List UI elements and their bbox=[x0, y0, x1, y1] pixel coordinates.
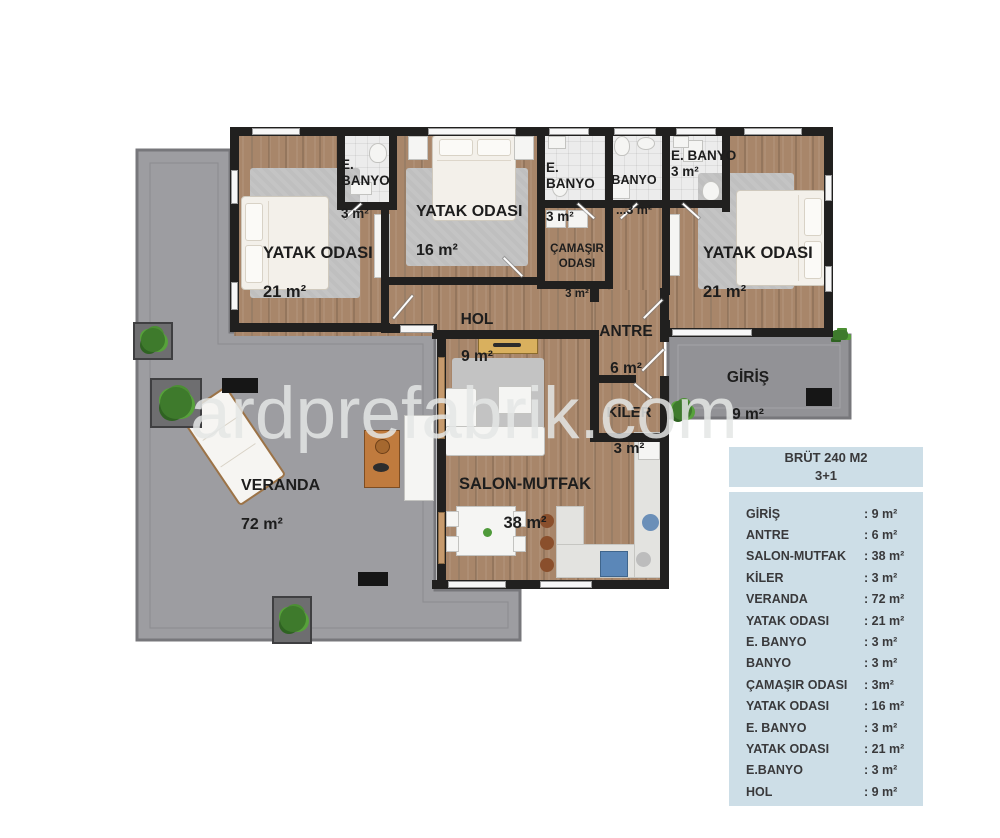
room-name-cell: YATAK ODASI bbox=[746, 742, 864, 756]
table-row: YATAK ODASI: 16 m² bbox=[729, 696, 923, 717]
room-name-cell: SALON-MUTFAK bbox=[746, 549, 864, 563]
room-area-cell: : 16 m² bbox=[864, 699, 923, 713]
table-row: YATAK ODASI: 21 m² bbox=[729, 610, 923, 631]
table-row: VERANDA: 72 m² bbox=[729, 589, 923, 610]
table-row: ÇAMAŞIR ODASI: 3m² bbox=[729, 674, 923, 695]
room-name-cell: ÇAMAŞIR ODASI bbox=[746, 678, 864, 692]
room-label-living: SALON-MUTFAK 38 m² bbox=[455, 455, 595, 554]
table-row: E. BANYO: 3 m² bbox=[729, 631, 923, 652]
room-name: E. BANYO bbox=[546, 160, 598, 192]
room-name: YATAK ODASI bbox=[263, 244, 373, 264]
room-name: YATAK ODASI bbox=[416, 202, 522, 221]
room-name: HOL bbox=[452, 311, 502, 330]
nightstand bbox=[514, 136, 534, 160]
room-area-cell: : 3 m² bbox=[864, 571, 923, 585]
plant bbox=[280, 606, 306, 632]
room-name-cell: VERANDA bbox=[746, 592, 864, 606]
room-name-cell: E. BANYO bbox=[746, 721, 864, 735]
room-area-cell: : 21 m² bbox=[864, 614, 923, 628]
room-area-cell: : 3 m² bbox=[864, 656, 923, 670]
info-table-body: GİRİŞ: 9 m²ANTRE: 6 m²SALON-MUTFAK: 38 m… bbox=[729, 492, 923, 806]
room-name-cell: E.BANYO bbox=[746, 763, 864, 777]
table-row: HOL: 9 m² bbox=[729, 781, 923, 802]
room-area: 72 m² bbox=[241, 515, 320, 534]
bar-stool bbox=[540, 558, 554, 572]
room-name: SALON-MUTFAK bbox=[455, 475, 595, 495]
room-label-bedroom-right: YATAK ODASI 21 m² bbox=[703, 224, 813, 323]
info-title-line2: 3+1 bbox=[729, 467, 923, 485]
table-row: KİLER: 3 m² bbox=[729, 567, 923, 588]
room-label-bedroom-left: YATAK ODASI 21 m² bbox=[263, 224, 373, 323]
table-row: GİRİŞ: 9 m² bbox=[729, 503, 923, 524]
room-label-veranda: VERANDA 72 m² bbox=[241, 457, 320, 553]
room-name: YATAK ODASI bbox=[703, 244, 813, 264]
room-area: 21 m² bbox=[703, 283, 813, 303]
doormat bbox=[358, 572, 388, 586]
plant bbox=[141, 328, 165, 352]
room-name: E. BANYO bbox=[671, 148, 736, 164]
room-area-cell: : 9 m² bbox=[864, 785, 923, 799]
room-name: ÇAMAŞIR ODASI bbox=[542, 242, 612, 272]
stove bbox=[636, 552, 651, 567]
table-row: ANTRE: 6 m² bbox=[729, 524, 923, 545]
room-area-cell: : 72 m² bbox=[864, 592, 923, 606]
room-name-cell: YATAK ODASI bbox=[746, 699, 864, 713]
table-row: E. BANYO: 3 m² bbox=[729, 717, 923, 738]
table-row: YATAK ODASI: 21 m² bbox=[729, 738, 923, 759]
room-label-ensuite-right: E. BANYO 3 m² bbox=[671, 148, 736, 180]
room-name-cell: KİLER bbox=[746, 571, 864, 585]
room-area: 16 m² bbox=[416, 241, 522, 260]
room-area: 38 m² bbox=[455, 514, 595, 534]
room-area: 21 m² bbox=[263, 283, 373, 303]
room-area-cell: : 3 m² bbox=[864, 721, 923, 735]
round-sink bbox=[642, 514, 659, 531]
room-area-cell: : 3 m² bbox=[864, 763, 923, 777]
room-name: ANTRE bbox=[596, 323, 656, 342]
floor-plan-page: YATAK ODASI 21 m² E. BANYO 3 m² YATAK OD… bbox=[0, 0, 1000, 838]
room-name-cell: GİRİŞ bbox=[746, 507, 864, 521]
room-area-cell: : 3m² bbox=[864, 678, 923, 692]
plant bbox=[160, 387, 192, 419]
room-area-cell: : 3 m² bbox=[864, 635, 923, 649]
room-name-cell: ANTRE bbox=[746, 528, 864, 542]
room-area: ...3 m² bbox=[604, 203, 664, 218]
room-label-ensuite-left: E. BANYO 3 m² bbox=[341, 141, 393, 238]
porch-doormat bbox=[806, 388, 832, 406]
kitchen-sink bbox=[600, 551, 628, 577]
info-title-line1: BRÜT 240 M2 bbox=[729, 449, 923, 467]
table-row: BANYO: 3 m² bbox=[729, 653, 923, 674]
room-area: 9 m² bbox=[452, 348, 502, 367]
room-name-cell: BANYO bbox=[746, 656, 864, 670]
toilet bbox=[702, 181, 720, 201]
room-name-cell: E. BANYO bbox=[746, 635, 864, 649]
room-name: VERANDA bbox=[241, 476, 320, 495]
room-label-bath: BANYO ...3 m² bbox=[604, 158, 664, 233]
room-area: 3 m² bbox=[542, 287, 612, 302]
watermark-text: ardprefabrik.com bbox=[190, 372, 738, 455]
info-table-header: BRÜT 240 M2 3+1 bbox=[729, 447, 923, 487]
room-area: 3 m² bbox=[341, 206, 393, 222]
room-area-cell: : 21 m² bbox=[864, 742, 923, 756]
plant bbox=[832, 330, 848, 340]
room-area: 3 m² bbox=[671, 164, 736, 180]
room-area-cell: : 9 m² bbox=[864, 507, 923, 521]
info-table-rows: GİRİŞ: 9 m²ANTRE: 6 m²SALON-MUTFAK: 38 m… bbox=[729, 503, 923, 802]
sink bbox=[673, 136, 689, 148]
nightstand bbox=[408, 136, 428, 160]
toilet bbox=[614, 136, 630, 156]
room-name: E. BANYO bbox=[341, 157, 393, 189]
room-name-cell: HOL bbox=[746, 785, 864, 799]
room-area: 3 m² bbox=[546, 209, 598, 225]
room-area-cell: : 38 m² bbox=[864, 549, 923, 563]
table-row: E.BANYO: 3 m² bbox=[729, 760, 923, 781]
sink bbox=[637, 137, 655, 150]
room-label-bedroom-middle: YATAK ODASI 16 m² bbox=[416, 183, 522, 279]
room-area-cell: : 6 m² bbox=[864, 528, 923, 542]
room-name: BANYO bbox=[604, 173, 664, 188]
table-row: SALON-MUTFAK: 38 m² bbox=[729, 546, 923, 567]
room-name-cell: YATAK ODASI bbox=[746, 614, 864, 628]
